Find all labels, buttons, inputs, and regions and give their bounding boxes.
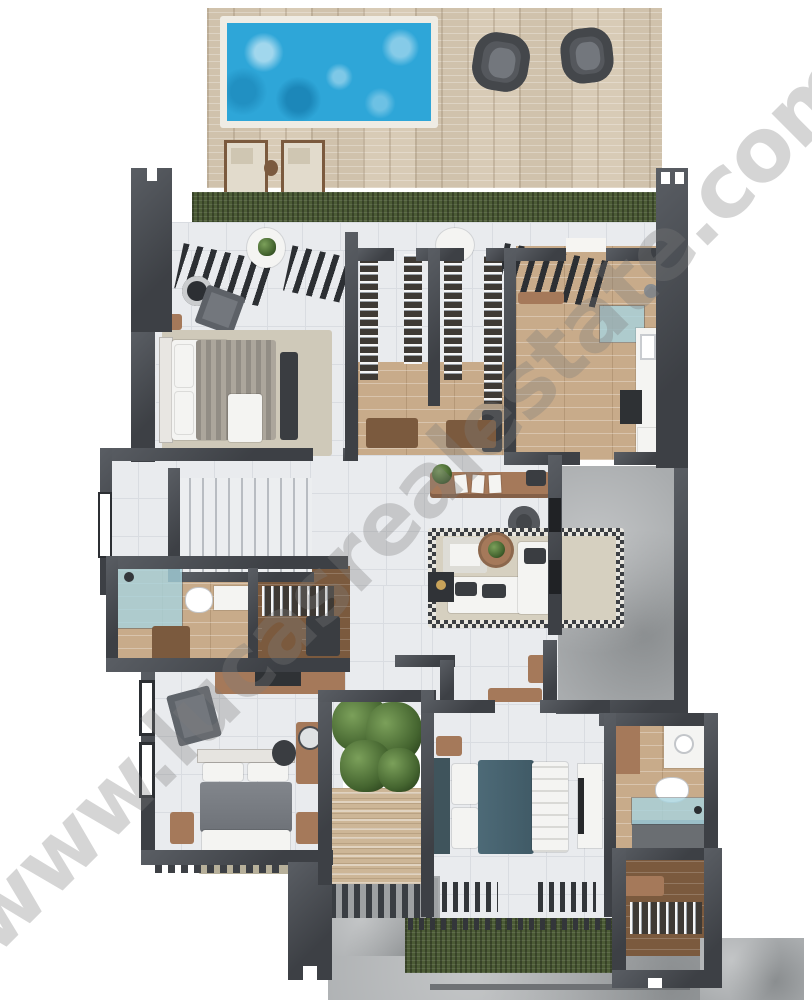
wall <box>612 970 722 988</box>
bed3-blanket <box>478 760 534 854</box>
closet-hanging-clothes <box>630 902 702 934</box>
wall <box>421 690 434 917</box>
wall <box>516 248 566 261</box>
shower-head <box>694 806 702 814</box>
wall <box>248 568 258 658</box>
desk-papers <box>489 475 502 494</box>
wall <box>416 248 464 261</box>
wicker-chair-cushion <box>575 41 602 71</box>
wall <box>504 248 516 460</box>
kitchen-sink <box>640 334 656 360</box>
window <box>139 680 155 736</box>
kitchen-counter <box>518 292 564 304</box>
window <box>98 492 112 558</box>
wall <box>428 248 440 406</box>
bed2-pillow <box>203 763 243 781</box>
closet-hanging-clothes <box>360 254 378 380</box>
wall <box>106 658 350 672</box>
closet-hanging-clothes <box>262 586 334 616</box>
wall <box>345 232 358 461</box>
wall <box>100 448 313 461</box>
wall <box>131 168 172 332</box>
wall <box>704 713 718 858</box>
patio-door-frame <box>549 498 561 532</box>
bathroom-vanity <box>214 586 248 610</box>
garden-tree <box>378 748 420 792</box>
desk-printer <box>526 470 546 486</box>
grass-strip <box>192 192 686 225</box>
floor-plan-render: www.lucasrealestate.com <box>0 0 812 1000</box>
sideboard-tv <box>255 672 301 686</box>
table-lamp <box>436 580 446 590</box>
slatted-bench <box>538 882 596 912</box>
wall-notch <box>648 978 662 988</box>
bed1-duvet <box>228 394 262 442</box>
sofa-cushion <box>524 548 546 564</box>
patio-door-frame <box>549 560 561 594</box>
desk-chair <box>272 740 296 766</box>
sofa-cushion <box>482 584 506 598</box>
desk-papers <box>454 474 468 493</box>
wall <box>131 332 155 462</box>
nightstand <box>170 812 194 844</box>
desk-plant <box>432 464 452 484</box>
kitchen-door-opening <box>566 238 606 252</box>
wall <box>108 556 348 569</box>
kitchen-stove <box>620 390 642 424</box>
terrace-table-plant <box>258 238 276 256</box>
nightstand <box>296 812 320 844</box>
sun-lounger-pillow <box>288 148 310 164</box>
wall <box>318 690 332 885</box>
wall <box>504 452 580 465</box>
bed3-pillow <box>452 764 478 804</box>
window <box>139 742 155 798</box>
closet-dresser <box>446 420 496 448</box>
closet-cabinet <box>306 616 340 656</box>
desk-papers <box>471 475 484 494</box>
closet-dresser <box>366 418 418 448</box>
closet-hanging-clothes <box>444 254 462 380</box>
slat-shadow <box>408 918 613 930</box>
wall <box>440 660 454 705</box>
deck-plant-pot <box>264 160 278 176</box>
garden-travertine <box>330 788 422 884</box>
sun-lounger-pillow <box>231 148 253 164</box>
toilet <box>186 588 212 612</box>
bathroom3-cabinet <box>616 718 640 774</box>
vanity-basin <box>676 736 692 752</box>
bed3-duvet <box>532 762 568 852</box>
shower-head <box>124 572 134 582</box>
hall-console <box>488 688 542 702</box>
tv-screen <box>578 778 584 834</box>
wall-notch <box>675 172 684 184</box>
closet-hanging-clothes <box>484 254 502 404</box>
stair-banister <box>180 572 314 582</box>
wall <box>540 700 610 713</box>
wall <box>548 455 562 635</box>
bed1-headboard <box>160 338 172 442</box>
slatted-bench <box>442 882 498 912</box>
wall-notch <box>661 172 670 184</box>
wall-notch <box>147 168 157 181</box>
wall-notch <box>303 966 317 980</box>
wall <box>704 848 722 988</box>
wall <box>612 848 626 988</box>
nightstand <box>436 736 462 756</box>
wall <box>318 690 436 702</box>
desk-mirror <box>300 728 320 748</box>
bed1-pillow <box>175 345 193 387</box>
coffee-table-plant <box>488 541 505 558</box>
bed1-foot-bench <box>280 352 298 440</box>
sofa-cushion <box>455 582 477 596</box>
bed3-pillow <box>452 808 478 848</box>
wall <box>674 468 688 714</box>
wall <box>421 700 495 713</box>
bed2-blanket <box>200 782 292 832</box>
shower-floor <box>632 820 704 848</box>
wall <box>358 248 394 261</box>
bed1-pillow <box>175 392 193 434</box>
swimming-pool <box>227 23 431 121</box>
wall <box>106 556 118 672</box>
closet-bench <box>262 624 302 658</box>
closet-hanging-clothes <box>404 254 422 364</box>
wall <box>606 248 660 261</box>
bed3-headboard <box>434 758 450 854</box>
wall <box>656 168 688 468</box>
wall <box>612 848 718 860</box>
louver-shadow <box>155 865 285 873</box>
wall <box>599 713 717 726</box>
